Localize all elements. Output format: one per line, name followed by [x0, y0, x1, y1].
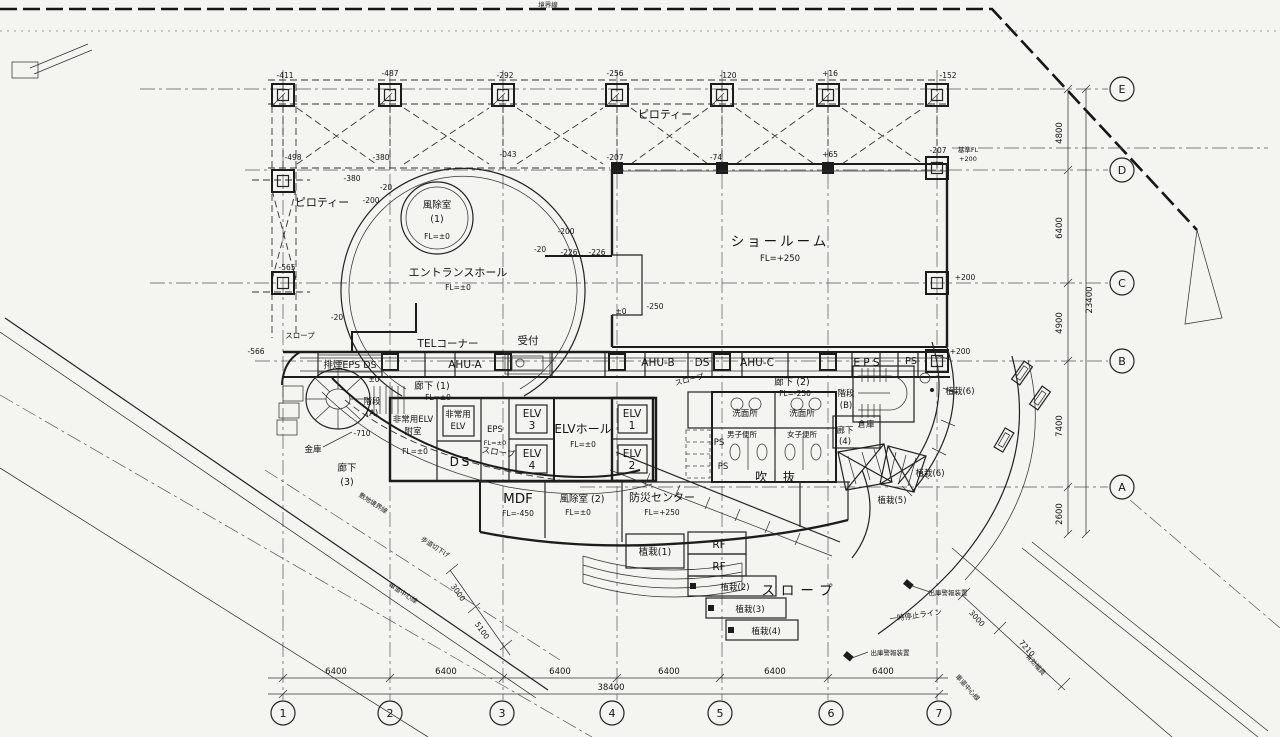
- label-windbreak1: 風除室: [423, 199, 452, 211]
- label-ds-band: DS: [695, 357, 710, 369]
- label-corridor3-no: (3): [340, 477, 353, 488]
- dim-sw-5100: 5100: [473, 620, 491, 641]
- offset-mid-6: +65: [822, 150, 838, 159]
- offset-c-2: -20: [380, 183, 392, 192]
- column-symbol: [272, 84, 948, 372]
- label-stair-a-no: (A): [366, 409, 378, 419]
- label-disaster-fl: FL=+250: [644, 508, 680, 517]
- label-planting4: 植栽(4): [751, 626, 780, 637]
- grid-col-5: 5: [717, 707, 724, 720]
- floor-plan: E D C B A 4800 6400 4900 7400 2600 23400…: [0, 0, 1280, 737]
- label-planting5: 植栽(5): [877, 495, 906, 506]
- offset-top-5: -120: [719, 71, 736, 80]
- label-elv2: ELV: [623, 448, 642, 460]
- label-windbreak2-fl: FL=±0: [565, 508, 591, 517]
- pilotis-structure: [252, 80, 948, 338]
- label-elv1-no: 1: [629, 420, 636, 432]
- road-center-se-label: 車道中心線: [954, 672, 983, 703]
- dimension-chain-bottom: 6400 6400 6400 6400 6400 6400 38400: [268, 667, 948, 698]
- offset-c-9: ±0: [615, 307, 626, 316]
- offset-left-1: -565: [278, 263, 295, 272]
- label-planting2: 植栽(2): [720, 582, 749, 593]
- offset-top-2: -487: [381, 69, 398, 78]
- label-womens-wc: 女子便所: [787, 429, 817, 439]
- label-rf1: RF: [712, 539, 725, 551]
- label-slope-mid: スロープ: [674, 372, 705, 388]
- label-ps-band: PS: [905, 356, 917, 367]
- offset-top-4: -256: [606, 69, 623, 78]
- dim-right-4900: 4900: [1055, 312, 1065, 334]
- road-center-sw-label: 車道中心線: [387, 580, 420, 606]
- label-pilotis-top: ピロティー: [638, 108, 692, 121]
- label-warehouse: 倉庫: [857, 419, 875, 430]
- offset-top-1: -411: [276, 71, 293, 80]
- label-elv4: ELV: [523, 448, 542, 460]
- label-elv2-no: 2: [629, 460, 636, 472]
- label-planting3: 植栽(3): [735, 604, 764, 615]
- label-rf2: RF: [712, 561, 725, 573]
- label-shaft-box: 排煙EPS DS: [323, 359, 376, 371]
- dim-right-total: 23400: [1085, 286, 1095, 313]
- label-elv4-no: 4: [529, 460, 536, 472]
- grid-col-1: 1: [280, 707, 287, 720]
- label-stair-a: 階段: [363, 396, 381, 407]
- label-corridor1: 廊下 (1): [414, 380, 449, 392]
- south-wing: [480, 482, 850, 640]
- effective-width-label: 有効幅員: [1024, 652, 1048, 678]
- label-ahu-b: AHU-B: [641, 357, 674, 369]
- label-showroom-fl: FL=+250: [760, 254, 800, 264]
- offset-mid-5: -74: [710, 153, 722, 162]
- label-corridor2-fl: FL=-250: [779, 389, 811, 398]
- label-ahu-c: AHU-C: [740, 357, 774, 369]
- offset-mid-3: -043: [499, 150, 516, 159]
- se-roads: [952, 500, 1280, 737]
- label-em-elv-2: ELV: [451, 422, 466, 432]
- grid-row-c: C: [1118, 277, 1126, 290]
- label-elv-hall: ELVホール: [554, 422, 611, 436]
- offset-showroom: +200: [955, 273, 976, 282]
- label-planting1: 植栽(1): [639, 546, 671, 558]
- offset-c-4: -200: [557, 227, 574, 236]
- label-corridor3: 廊下: [337, 462, 356, 474]
- label-corridor4-no: (4): [839, 437, 851, 447]
- label-pilotis-left: ピロティー: [295, 196, 349, 209]
- label-eps-core: EPS: [487, 425, 503, 435]
- label-disaster: 防災センター: [629, 490, 695, 504]
- offset-mid-2: -380: [372, 153, 389, 162]
- grid-col-7: 7: [936, 707, 943, 720]
- dim-right-7400: 7400: [1055, 415, 1065, 437]
- grid-col-6: 6: [828, 707, 835, 720]
- label-corridor1-fl: FL=±0: [425, 393, 451, 402]
- dim-bottom-6: 6400: [872, 667, 894, 677]
- site-boundary-lines: [0, 9, 1280, 324]
- dim-right-4800: 4800: [1055, 122, 1065, 144]
- grid-row-d: D: [1118, 164, 1126, 177]
- label-windbreak2: 風除室 (2): [560, 493, 605, 505]
- alarm1-label: 出庫警報装置: [929, 588, 969, 597]
- label-ps-2: PS: [718, 462, 729, 472]
- label-eps-band: EPS: [853, 356, 883, 369]
- offset-band: +200: [950, 347, 971, 356]
- dim-bottom-1: 6400: [325, 667, 347, 677]
- offset-c-11: -20: [331, 313, 343, 322]
- offset-top-6: +16: [822, 69, 838, 78]
- offset-left-2: -566: [247, 347, 264, 356]
- offset-top-3: -292: [496, 71, 513, 80]
- dim-bottom-4: 6400: [658, 667, 680, 677]
- grid-bubbles-bottom: 1 2 3 4 5 6 7: [271, 701, 951, 725]
- grid-row-e: E: [1119, 83, 1126, 96]
- dim-bottom-2: 6400: [435, 667, 457, 677]
- dim-right-2600: 2600: [1055, 503, 1065, 525]
- floor-plan-canvas: E D C B A 4800 6400 4900 7400 2600 23400…: [0, 0, 1280, 737]
- offset-c-12: ±0: [368, 375, 379, 384]
- dimension-chain-right: 4800 6400 4900 7400 2600 23400: [1055, 85, 1095, 538]
- offset-c-1: -380: [343, 174, 360, 183]
- label-em-elv-1: 非常用: [445, 409, 471, 420]
- offset-c-6: -226: [560, 248, 577, 257]
- offset-c-10: -710: [353, 429, 370, 438]
- dim-right-6400: 6400: [1055, 217, 1065, 239]
- columns: [272, 84, 948, 372]
- label-windbreak1-fl: FL=±0: [424, 232, 450, 241]
- datum-value: +200: [959, 155, 977, 163]
- label-em-lobby-2: 附室: [404, 426, 422, 437]
- label-washroom2: 洗面所: [789, 408, 815, 419]
- label-planting6b: 植栽(6): [915, 468, 944, 479]
- offset-c-7: -226: [588, 248, 605, 257]
- label-safe: 金庫: [304, 444, 322, 455]
- sidewalk-cut-label: 歩道切下げ: [419, 534, 452, 560]
- grid-row-b: B: [1118, 355, 1126, 368]
- offset-c-3: -200: [362, 196, 379, 205]
- stop-line-label: 一時停止ライン: [889, 606, 942, 623]
- label-reception: 受付: [518, 334, 539, 347]
- label-stair-b-no: (B): [840, 401, 852, 411]
- offset-mid-1: -498: [284, 153, 301, 162]
- dim-sw-3000: 3000: [449, 582, 467, 603]
- label-mens-wc: 男子便所: [727, 429, 757, 439]
- label-showroom: ショールーム: [731, 234, 830, 250]
- label-ps-1: PS: [714, 438, 725, 448]
- label-washroom1: 洗面所: [732, 408, 758, 419]
- site-boundary-label: 敷地境界線: [357, 490, 390, 516]
- label-void: 吹 抜: [755, 470, 801, 484]
- grid-col-4: 4: [609, 707, 616, 720]
- label-elv3-no: 3: [529, 420, 536, 432]
- dim-bottom-5: 6400: [764, 667, 786, 677]
- label-em-lobby-fl: FL=±0: [402, 447, 428, 456]
- grid-col-3: 3: [499, 707, 506, 720]
- label-mdf-fl: FL=-450: [502, 509, 534, 518]
- label-ahu-a: AHU-A: [448, 359, 482, 371]
- label-entrance-hall: エントランスホール: [409, 266, 508, 279]
- datum-label: 基準FL: [958, 145, 979, 154]
- grid-row-a: A: [1118, 481, 1126, 494]
- offset-top-7: -152: [939, 71, 956, 80]
- label-stair-b: 階段: [837, 388, 855, 399]
- dim-bottom-total: 38400: [597, 683, 624, 693]
- offset-mid-7: -207: [929, 146, 946, 155]
- label-elv3: ELV: [523, 408, 542, 420]
- label-planting6a: 植栽(6): [945, 386, 974, 397]
- label-tel-corner: TELコーナー: [417, 338, 479, 350]
- offset-c-5: -20: [534, 245, 546, 254]
- offset-mid-4: -207: [606, 153, 623, 162]
- dim-se-3000: 3000: [967, 608, 987, 628]
- label-ds-core: DS: [450, 455, 473, 469]
- boundary-top-label: 境界線: [538, 0, 558, 9]
- corridor-band: [283, 352, 950, 377]
- label-entrance-hall-fl: FL=±0: [445, 283, 471, 292]
- label-elv1: ELV: [623, 408, 642, 420]
- label-slope-nw: スロープ: [285, 331, 315, 340]
- label-slope-main: スロープ: [761, 583, 838, 599]
- dim-bottom-3: 6400: [549, 667, 571, 677]
- grid-bubbles-right: E D C B A: [1110, 77, 1134, 499]
- stair-b: [853, 366, 914, 422]
- alarm2-label: 出庫警報装置: [871, 648, 911, 657]
- offset-c-8: -250: [646, 302, 663, 311]
- label-corridor2: 廊下 (2): [774, 376, 809, 388]
- label-windbreak1-no: (1): [430, 214, 443, 225]
- label-em-lobby-1: 非常用ELV: [393, 414, 434, 425]
- label-elv-hall-fl: FL=±0: [570, 440, 596, 449]
- label-corridor4: 廊下: [836, 425, 854, 436]
- label-mdf: MDF: [503, 491, 533, 507]
- label-slope-band: スロープ: [481, 446, 516, 461]
